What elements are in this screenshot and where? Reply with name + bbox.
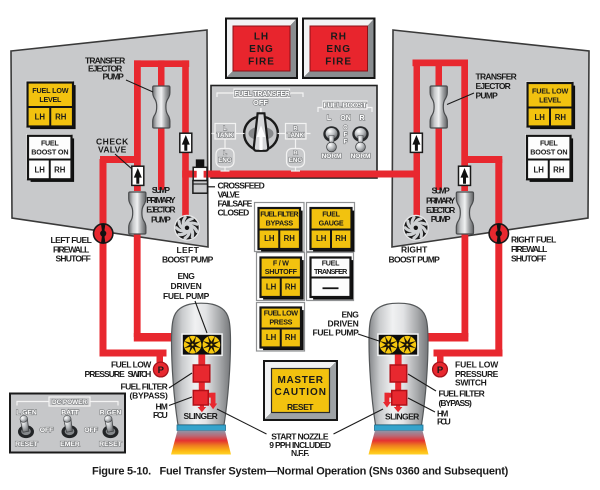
svg-text:L: L: [327, 115, 332, 122]
svg-text:TRANSFER: TRANSFER: [314, 267, 348, 276]
svg-text:RH: RH: [553, 166, 565, 175]
svg-text:ENG: ENG: [326, 44, 351, 55]
svg-text:LH: LH: [35, 113, 46, 122]
svg-text:FIRE: FIRE: [325, 56, 352, 67]
svg-text:FUEL TRANSFER: FUEL TRANSFER: [234, 91, 290, 98]
svg-text:PRIMARY: PRIMARY: [426, 196, 456, 206]
svg-text:DRIVEN: DRIVEN: [171, 281, 202, 291]
svg-text:ENG: ENG: [178, 271, 196, 281]
svg-text:FIREWALL: FIREWALL: [511, 244, 547, 254]
svg-text:FCU: FCU: [437, 416, 451, 426]
svg-text:RH: RH: [285, 283, 297, 292]
svg-text:R: R: [359, 115, 364, 122]
svg-text:SHUTOFF: SHUTOFF: [265, 267, 298, 276]
svg-text:EMER: EMER: [60, 441, 80, 448]
svg-text:FUEL PUMP: FUEL PUMP: [163, 291, 210, 301]
svg-text:SHUTOFF: SHUTOFF: [56, 254, 91, 264]
svg-text:(BYPASS): (BYPASS): [439, 398, 472, 408]
svg-text:RH: RH: [284, 234, 296, 243]
svg-text:RESET: RESET: [15, 441, 39, 448]
svg-text:F: F: [344, 140, 348, 146]
svg-text:N.F.F.: N.F.F.: [291, 448, 309, 458]
svg-text:Figure 5-10. Fuel Transfer S: Figure 5-10. Fuel Transfer System—Normal…: [92, 466, 509, 478]
svg-text:SWITCH: SWITCH: [128, 369, 152, 379]
svg-text:SUMP: SUMP: [432, 186, 451, 196]
svg-text:PRIMARY: PRIMARY: [146, 195, 176, 205]
svg-text:BOOST PUMP: BOOST PUMP: [389, 255, 441, 265]
svg-text:FUEL BOOST: FUEL BOOST: [324, 103, 368, 110]
svg-text:OFF: OFF: [40, 427, 54, 434]
svg-text:FCU: FCU: [153, 410, 168, 420]
svg-text:RH: RH: [55, 113, 67, 122]
svg-text:(BYPASS): (BYPASS): [130, 391, 168, 401]
svg-text:NORM: NORM: [322, 153, 342, 160]
svg-text:LH: LH: [534, 166, 545, 175]
svg-text:FUEL FILTER: FUEL FILTER: [260, 210, 299, 219]
svg-text:RH: RH: [285, 333, 297, 342]
svg-text:BYPASS: BYPASS: [266, 218, 294, 227]
svg-text:BATT: BATT: [61, 410, 79, 417]
svg-text:PUMP: PUMP: [151, 214, 171, 224]
svg-text:LEVEL: LEVEL: [39, 95, 62, 104]
svg-text:CAUTION: CAUTION: [275, 387, 327, 398]
svg-text:MASTER: MASTER: [278, 375, 324, 386]
svg-text:FUEL PUMP: FUEL PUMP: [313, 328, 360, 338]
svg-text:LEVEL: LEVEL: [539, 96, 562, 105]
svg-text:FUEL: FUEL: [41, 139, 59, 148]
svg-text:P: P: [437, 365, 444, 376]
svg-text:LH: LH: [254, 32, 269, 43]
svg-text:L GEN: L GEN: [16, 410, 37, 417]
svg-text:NORM: NORM: [351, 153, 371, 160]
svg-text:GAUGE: GAUGE: [319, 218, 344, 227]
svg-text:BOOST PUMP: BOOST PUMP: [162, 255, 214, 265]
svg-text:OFF: OFF: [253, 98, 268, 107]
svg-text:BOOST ON: BOOST ON: [530, 148, 567, 157]
svg-text:LEFT FUEL: LEFT FUEL: [51, 235, 92, 245]
svg-text:RH: RH: [335, 234, 347, 243]
svg-text:P: P: [158, 365, 165, 376]
svg-text:RESET: RESET: [287, 402, 314, 412]
svg-text:RH: RH: [54, 166, 66, 175]
svg-text:BOOST ON: BOOST ON: [31, 148, 68, 157]
svg-text:DC POWER: DC POWER: [52, 399, 87, 406]
svg-text:SWITCH: SWITCH: [455, 377, 487, 387]
svg-text:SLINGER: SLINGER: [385, 412, 419, 422]
svg-text:RIGHT: RIGHT: [401, 245, 428, 255]
svg-text:ON: ON: [340, 115, 351, 122]
svg-text:RIGHT FUEL: RIGHT FUEL: [511, 235, 556, 245]
svg-text:ENG: ENG: [289, 157, 303, 164]
svg-text:LH: LH: [264, 234, 275, 243]
svg-text:PUMP: PUMP: [476, 90, 499, 100]
svg-text:FUEL LOW: FUEL LOW: [264, 309, 299, 318]
svg-text:PUMP: PUMP: [103, 72, 125, 82]
svg-text:RESET: RESET: [99, 441, 123, 448]
svg-text:LEFT: LEFT: [177, 245, 200, 255]
svg-text:F: F: [344, 133, 348, 139]
svg-text:PRESSURE: PRESSURE: [85, 369, 126, 379]
svg-text:VALVE: VALVE: [98, 145, 127, 155]
svg-text:SUMP: SUMP: [152, 185, 171, 195]
svg-text:EJECTOR: EJECTOR: [146, 205, 175, 215]
svg-text:FUEL LOW: FUEL LOW: [32, 86, 69, 95]
svg-text:PRESS: PRESS: [269, 317, 292, 326]
svg-text:FUEL: FUEL: [322, 210, 340, 219]
svg-text:FUEL: FUEL: [540, 139, 558, 148]
svg-text:TANK: TANK: [287, 132, 304, 139]
svg-text:LH: LH: [266, 333, 277, 342]
svg-text:FIRE: FIRE: [248, 56, 275, 67]
svg-text:O: O: [343, 126, 348, 132]
svg-text:FUEL LOW: FUEL LOW: [111, 360, 152, 370]
svg-text:TANK: TANK: [217, 132, 234, 139]
svg-text:LH: LH: [534, 113, 545, 122]
svg-text:SHUTOFF: SHUTOFF: [511, 254, 546, 264]
svg-text:ENG: ENG: [249, 44, 274, 55]
svg-text:CLOSED: CLOSED: [218, 208, 250, 218]
svg-text:LH: LH: [316, 234, 327, 243]
svg-text:FUEL LOW: FUEL LOW: [532, 87, 569, 96]
svg-text:OFF: OFF: [84, 427, 98, 434]
svg-text:ENG: ENG: [218, 157, 232, 164]
svg-text:TRANSFER: TRANSFER: [476, 72, 517, 82]
svg-text:SLINGER: SLINGER: [184, 411, 218, 421]
svg-text:R GEN: R GEN: [100, 410, 122, 417]
svg-text:RH: RH: [555, 113, 567, 122]
svg-text:LH: LH: [266, 283, 277, 292]
svg-text:RH: RH: [330, 32, 346, 43]
svg-text:L: L: [223, 151, 227, 157]
svg-text:LH: LH: [35, 166, 46, 175]
svg-text:PUMP: PUMP: [431, 214, 451, 224]
